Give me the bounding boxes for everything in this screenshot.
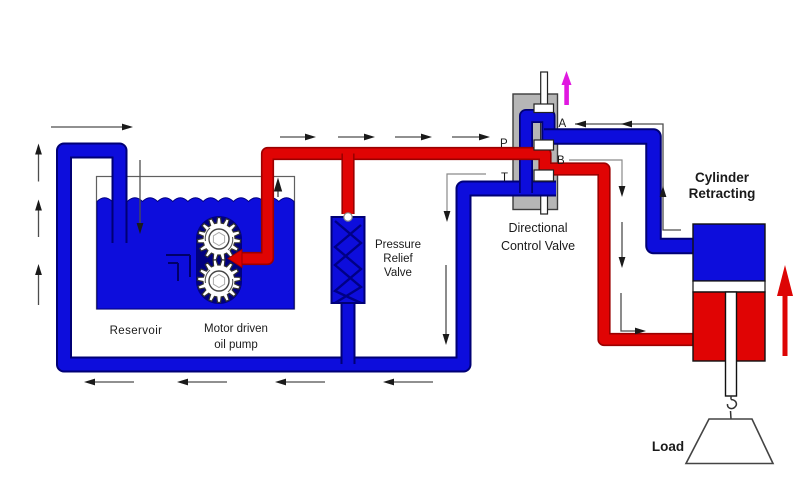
svg-text:Retracting: Retracting — [689, 186, 756, 201]
svg-text:Control Valve: Control Valve — [501, 239, 575, 253]
svg-text:T: T — [501, 172, 508, 184]
svg-text:Cylinder: Cylinder — [695, 170, 750, 185]
svg-text:Motor driven: Motor driven — [204, 323, 268, 335]
svg-text:Reservoir: Reservoir — [110, 325, 163, 337]
svg-text:oil pump: oil pump — [214, 339, 257, 351]
svg-text:Pressure: Pressure — [375, 239, 421, 251]
svg-text:Relief: Relief — [383, 253, 413, 265]
svg-text:Valve: Valve — [384, 267, 412, 279]
svg-text:P: P — [500, 138, 508, 150]
svg-text:Load: Load — [652, 439, 684, 454]
svg-text:Directional: Directional — [508, 221, 567, 235]
svg-text:B: B — [557, 155, 565, 167]
svg-text:A: A — [559, 118, 567, 130]
